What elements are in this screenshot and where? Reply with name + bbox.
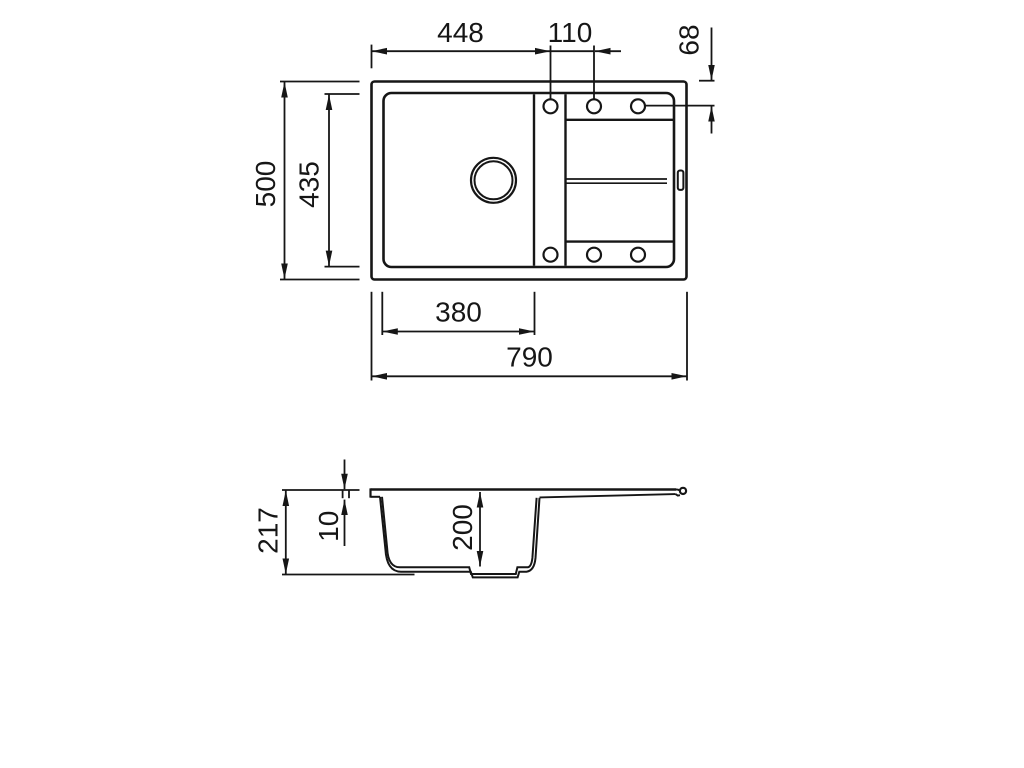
svg-text:448: 448	[437, 17, 484, 48]
svg-text:10: 10	[313, 511, 344, 542]
svg-text:200: 200	[447, 504, 478, 551]
svg-text:500: 500	[250, 161, 281, 208]
svg-text:380: 380	[435, 297, 482, 328]
svg-text:68: 68	[674, 24, 705, 55]
svg-text:110: 110	[548, 17, 593, 48]
svg-text:790: 790	[506, 342, 553, 373]
svg-text:217: 217	[253, 507, 284, 554]
svg-text:435: 435	[294, 161, 325, 208]
